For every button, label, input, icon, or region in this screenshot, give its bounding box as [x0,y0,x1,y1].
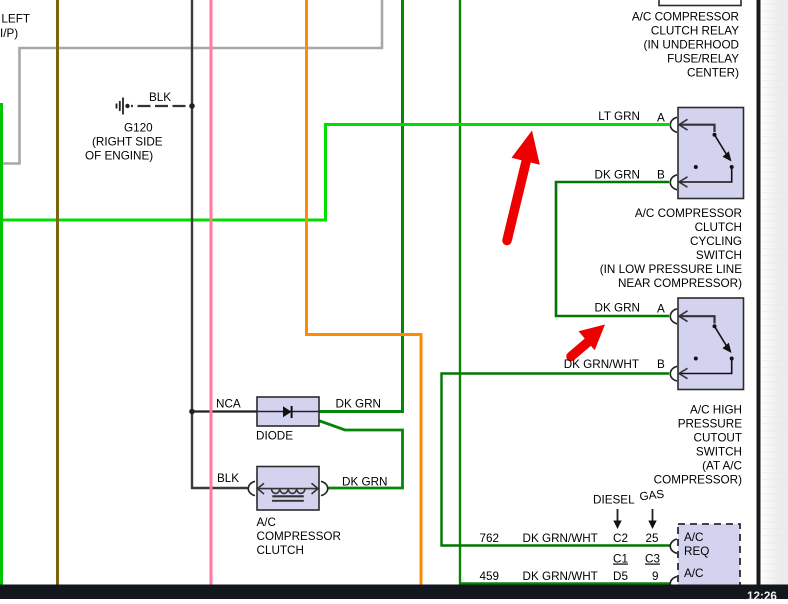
svg-text:DK GRN: DK GRN [342,476,387,489]
svg-text:A/C COMPRESSOR: A/C COMPRESSOR [635,207,742,220]
svg-text:CLUTCH RELAY: CLUTCH RELAY [651,25,739,38]
svg-text:I/P): I/P) [0,27,18,40]
svg-text:SWITCH: SWITCH [696,446,742,459]
svg-text:DK GRN: DK GRN [336,398,381,411]
svg-text:COMPRESSOR): COMPRESSOR) [654,474,742,487]
svg-text:25: 25 [645,532,659,545]
svg-text:FUSE/RELAY: FUSE/RELAY [667,53,739,66]
svg-text:SWITCH: SWITCH [696,249,742,262]
svg-text:C2: C2 [613,532,628,545]
svg-text:OF ENGINE): OF ENGINE) [85,150,153,163]
svg-text:(RIGHT SIDE: (RIGHT SIDE [92,136,163,149]
svg-text:LEFT: LEFT [1,13,30,26]
svg-text:9: 9 [652,570,659,583]
svg-text:G120: G120 [124,122,153,135]
svg-text:(IN LOW PRESSURE LINE: (IN LOW PRESSURE LINE [600,263,742,276]
svg-text:C1: C1 [613,553,628,566]
svg-text:DK GRN: DK GRN [595,169,640,182]
svg-text:A: A [657,112,665,125]
svg-text:(IN UNDERHOOD: (IN UNDERHOOD [644,39,739,52]
svg-text:B: B [657,358,665,371]
svg-text:REQ: REQ [684,545,709,558]
svg-text:DK GRN/WHT: DK GRN/WHT [523,570,598,583]
svg-text:B: B [657,169,665,182]
svg-text:A: A [657,303,665,316]
svg-text:DK GRN: DK GRN [595,302,640,315]
svg-text:BLK: BLK [217,472,239,485]
svg-text:PRESSURE: PRESSURE [678,418,743,431]
svg-text:NEAR COMPRESSOR): NEAR COMPRESSOR) [618,277,742,290]
svg-text:DIODE: DIODE [256,430,293,443]
svg-text:DK GRN/WHT: DK GRN/WHT [523,532,598,545]
svg-text:459: 459 [480,570,500,583]
svg-text:LT GRN: LT GRN [598,110,640,123]
svg-text:D5: D5 [613,570,628,583]
svg-text:CYCLING: CYCLING [690,235,742,248]
svg-text:BLK: BLK [149,91,171,104]
svg-text:CENTER): CENTER) [687,67,739,80]
svg-text:A/C COMPRESSOR: A/C COMPRESSOR [632,11,739,24]
svg-text:762: 762 [480,532,500,545]
svg-text:A/C HIGH: A/C HIGH [690,404,742,417]
svg-text:12:26: 12:26 [747,590,777,599]
svg-text:A/C: A/C [684,567,703,580]
svg-text:NCA: NCA [216,398,241,411]
svg-text:A/C: A/C [257,516,276,529]
svg-text:DIESEL: DIESEL [593,494,635,507]
svg-text:(AT A/C: (AT A/C [702,460,742,473]
svg-text:CLUTCH: CLUTCH [695,221,742,234]
svg-text:CLUTCH: CLUTCH [257,544,304,557]
svg-text:A/C: A/C [684,531,703,544]
svg-text:CUTOUT: CUTOUT [694,432,742,445]
svg-text:COMPRESSOR: COMPRESSOR [257,530,341,543]
svg-text:DK GRN/WHT: DK GRN/WHT [564,358,639,371]
svg-text:C3: C3 [645,553,660,566]
